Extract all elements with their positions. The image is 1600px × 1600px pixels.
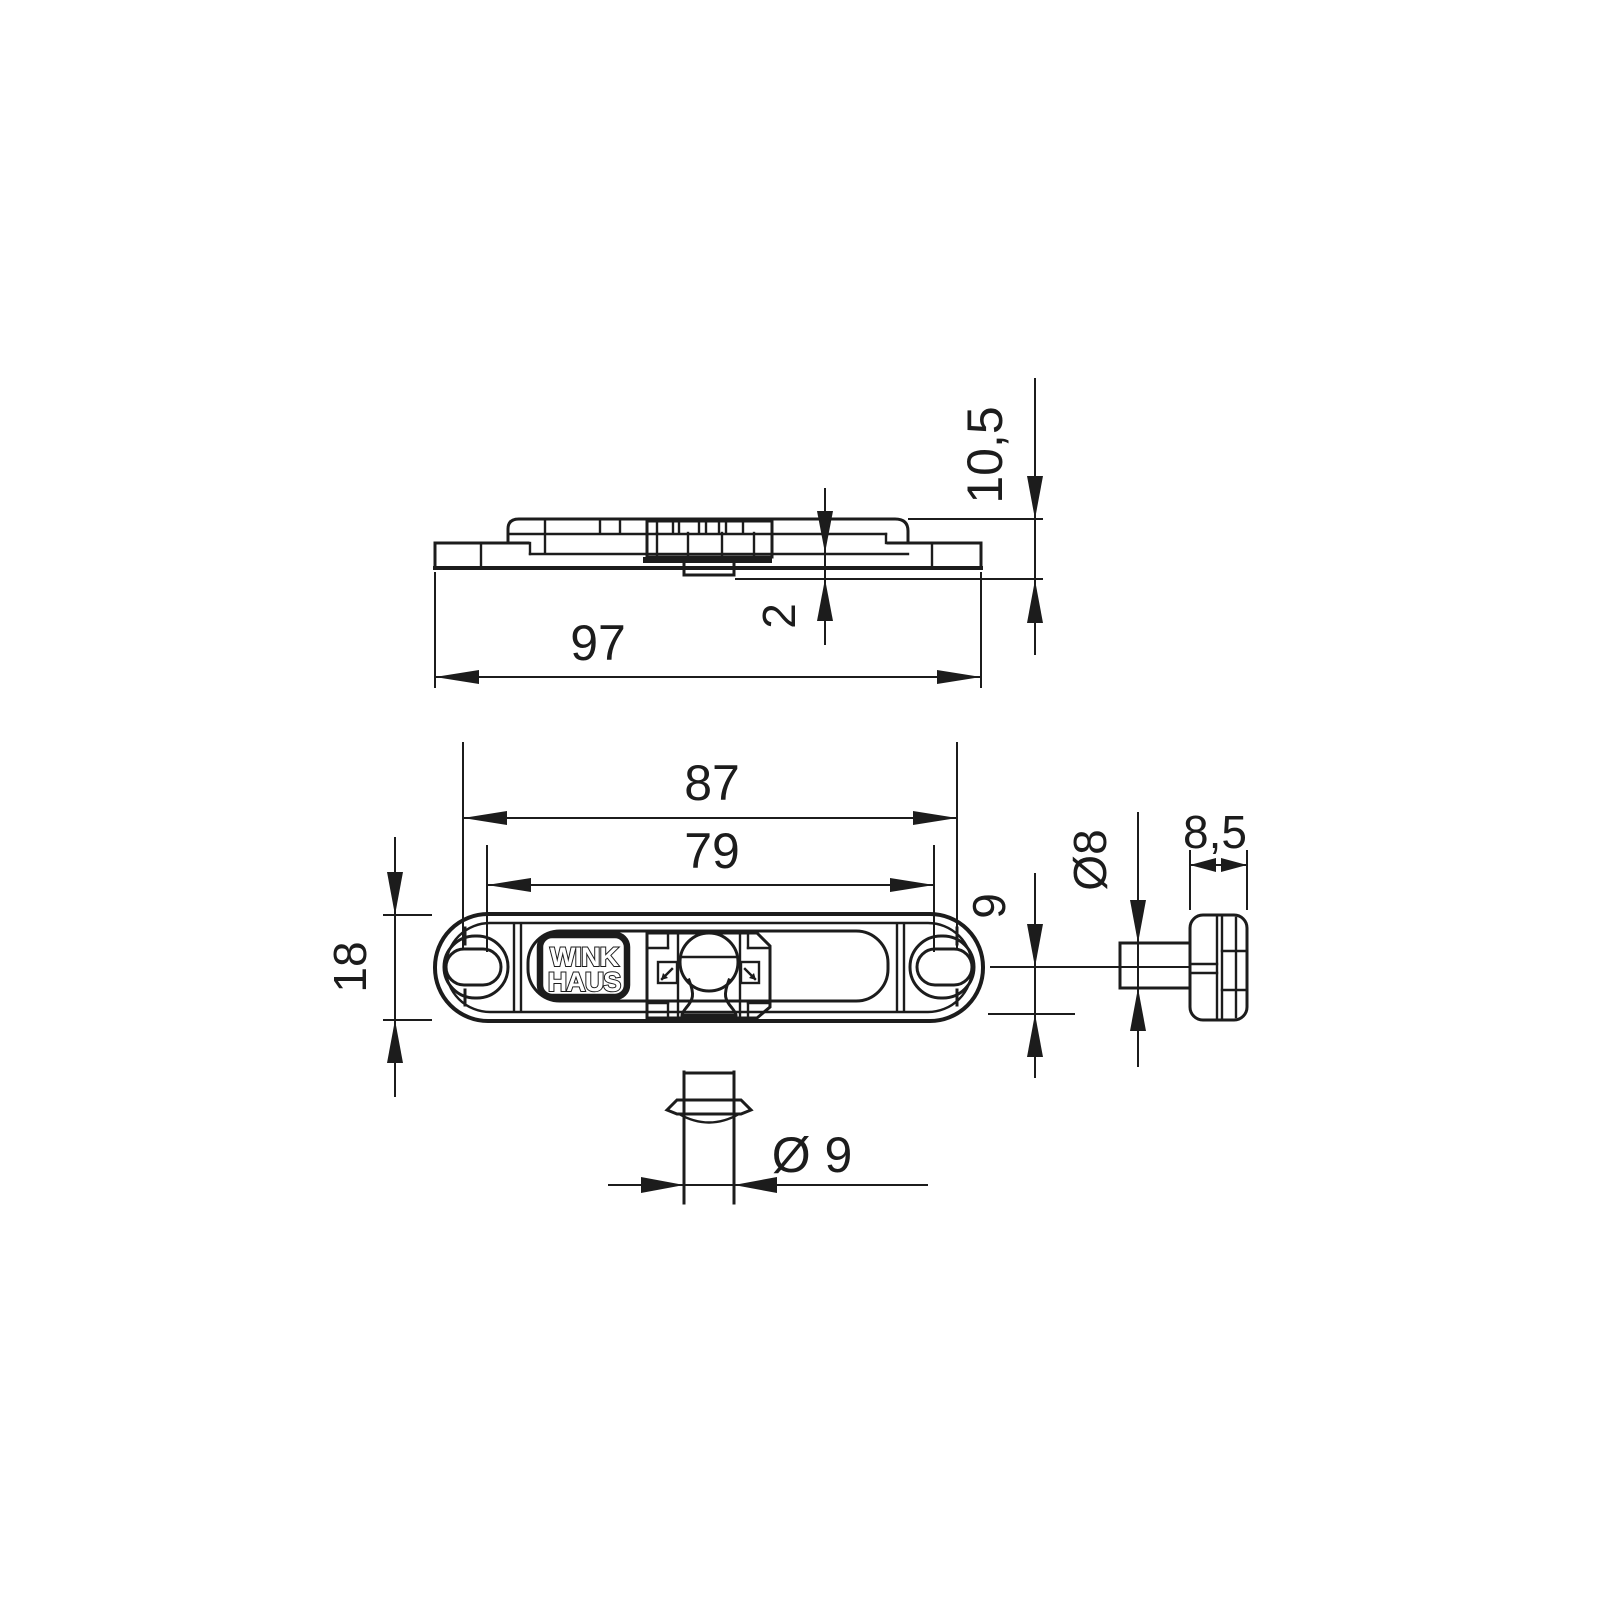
cam-side-view: Ø8 8,5 <box>1064 806 1247 1067</box>
dim-center-to-edge: 9 <box>963 873 1075 1078</box>
dim-overall-height: 10,5 <box>957 378 1043 655</box>
adjust-marker-left <box>658 962 677 983</box>
dim-label-87: 87 <box>684 755 740 811</box>
arrowhead <box>1027 924 1043 967</box>
arrowhead <box>1027 580 1043 623</box>
arrowhead <box>1027 476 1043 519</box>
arrowhead <box>1027 1014 1043 1057</box>
arrowhead <box>641 1177 684 1193</box>
arrowhead <box>1190 858 1216 872</box>
latch-block <box>647 933 770 1018</box>
arrowhead <box>387 872 403 915</box>
arrowhead <box>817 511 833 553</box>
arrowhead <box>937 670 981 684</box>
dim-pin-diameter: Ø 9 <box>608 1127 928 1193</box>
dim-cam-shaft-diameter: Ø8 <box>1064 812 1146 1067</box>
dim-label-2: 2 <box>753 603 805 629</box>
dim-label-dia9: Ø 9 <box>772 1127 853 1183</box>
technical-drawing: 97 10,5 2 <box>0 0 1600 1600</box>
dim-label-8-5: 8,5 <box>1183 806 1247 858</box>
adjust-marker-right <box>741 962 759 983</box>
dim-label-18: 18 <box>324 941 376 992</box>
brand-line2: HAUS <box>548 967 621 997</box>
arrowhead <box>890 878 934 892</box>
arrowhead <box>435 670 479 684</box>
dim-label-97: 97 <box>570 615 626 671</box>
side-elevation-view <box>435 519 1043 579</box>
dim-plate-width: 18 <box>324 837 432 1097</box>
dim-overall-length: 97 <box>435 572 981 688</box>
dim-cam-head-width: 8,5 <box>1183 806 1247 910</box>
brand-logo: WINK HAUS <box>540 935 627 997</box>
cam-head <box>1190 915 1247 1020</box>
dim-label-dia8: Ø8 <box>1064 829 1116 890</box>
arrowhead <box>913 811 957 825</box>
arrowhead <box>1221 858 1247 872</box>
arrowhead <box>734 1177 777 1193</box>
pin-flange <box>667 1100 751 1114</box>
front-view: WINK HAUS <box>435 914 1190 1021</box>
mushroom-cam <box>680 933 738 1015</box>
arrowhead <box>387 1020 403 1063</box>
arrowhead <box>1130 900 1146 943</box>
dim-label-10-5: 10,5 <box>957 406 1013 503</box>
dim-label-79: 79 <box>684 823 740 879</box>
arrowhead <box>463 811 507 825</box>
arrowhead <box>1130 988 1146 1031</box>
dim-label-9: 9 <box>963 893 1015 919</box>
latch-cluster-detail <box>657 521 754 556</box>
arrowhead <box>817 579 833 621</box>
pin-bottom-view: Ø 9 <box>608 1072 928 1203</box>
arrowhead <box>487 878 531 892</box>
drawing-canvas: 97 10,5 2 <box>0 0 1600 1600</box>
